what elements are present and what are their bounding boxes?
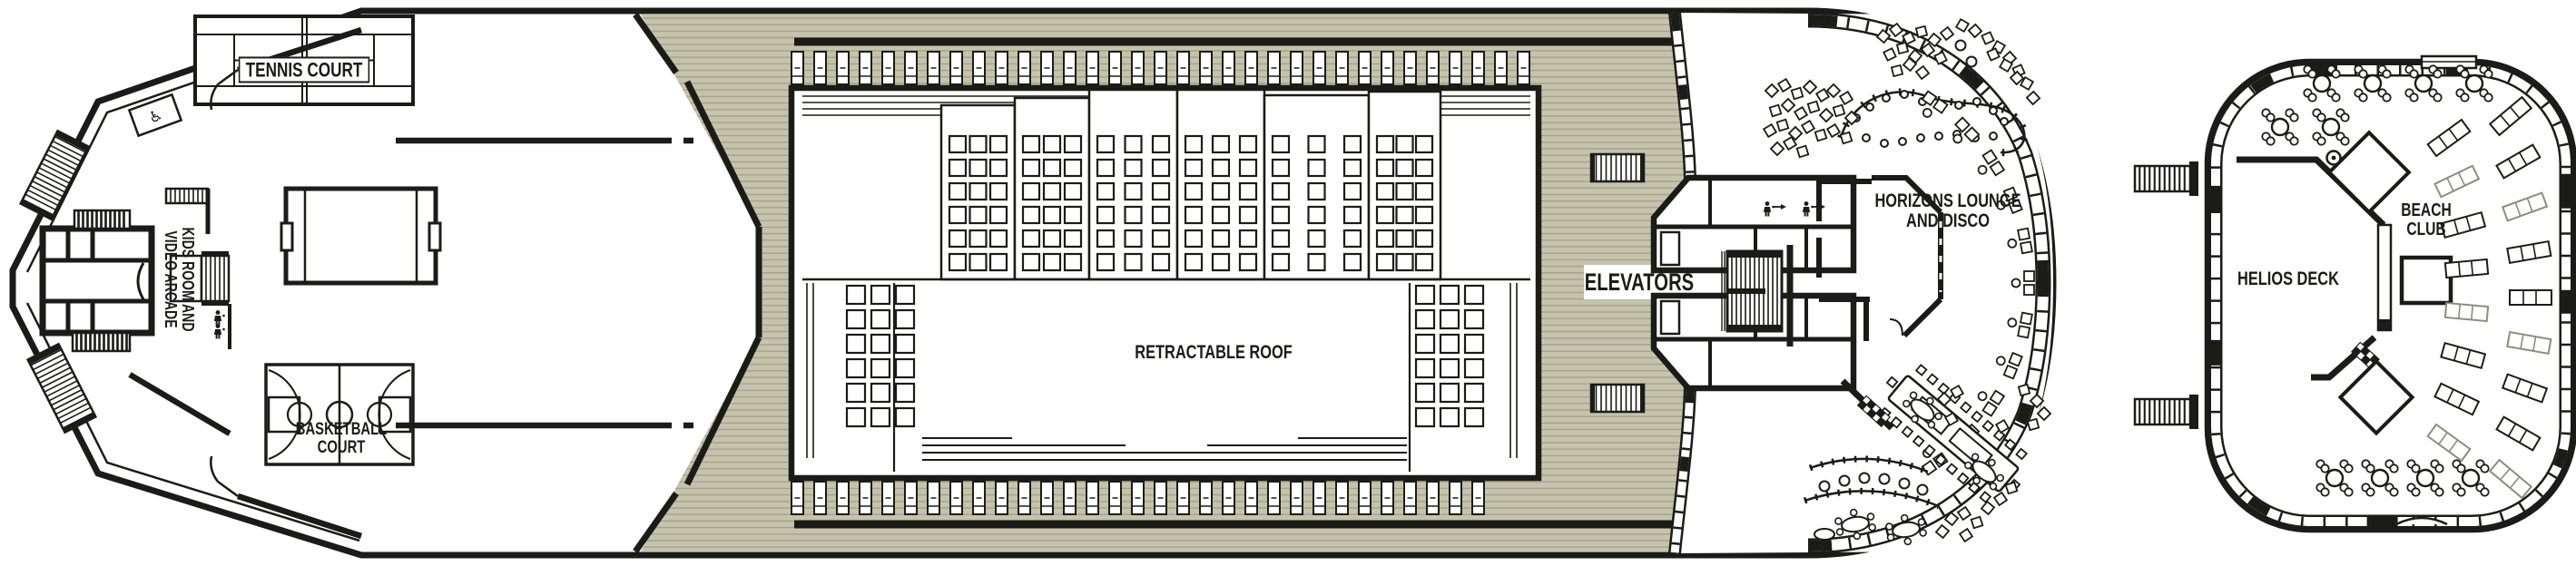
helios-deck-label: HELIOS DECK bbox=[2237, 269, 2339, 289]
elevators-label: ELEVATORS bbox=[1585, 269, 1694, 295]
beach-club-label: BEACH CLUB bbox=[2401, 201, 2451, 239]
horizons-lounge-label: HORIZONS LOUNGE AND DISCO bbox=[1874, 191, 2020, 231]
deck-plan-drawing: ♿ bbox=[0, 0, 2576, 566]
deck-plan-page: ♿ TENNIS COURT KIDS ROOM AND VIDEO ARCAD… bbox=[0, 0, 2576, 566]
retractable-roof-structure bbox=[791, 88, 1539, 478]
basketball-court-label: BASKETBALL COURT bbox=[296, 421, 387, 457]
tennis-court-label: TENNIS COURT bbox=[239, 56, 369, 83]
helios-deck-area bbox=[2135, 56, 2574, 530]
kids-room-label: KIDS ROOM AND VIDEO ARCADE bbox=[162, 228, 196, 332]
retractable-roof-label: RETRACTABLE ROOF bbox=[1135, 343, 1293, 363]
